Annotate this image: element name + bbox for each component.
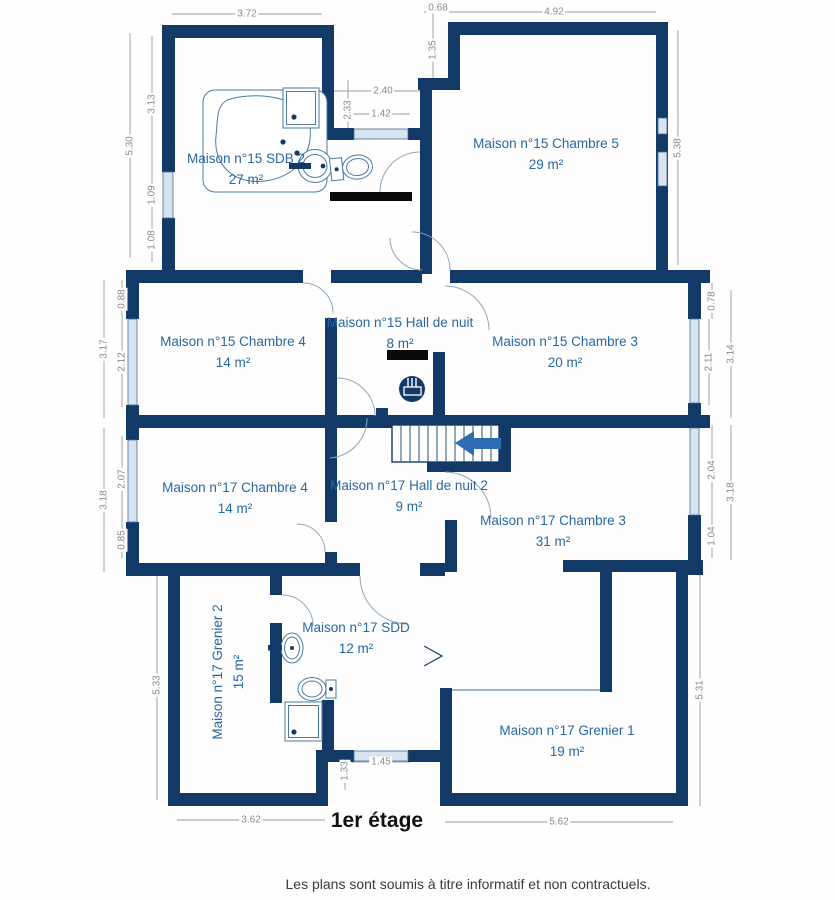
room-name: Maison n°15 SDB 2 [187,151,305,166]
room-label-chambre4-n15: Maison n°15 Chambre 4 14 m² [160,331,306,373]
room-area: 8 m² [386,336,413,351]
dimension-label: 5.30 [125,134,136,157]
room-area: 19 m² [550,744,585,759]
room-name: Maison n°17 Chambre 4 [162,480,308,495]
room-area: 29 m² [529,157,564,172]
dimension-label: 2.40 [371,86,394,97]
dimension-label: 1.45 [369,757,392,768]
dimension-label: 0.68 [426,3,449,14]
room-label-hall2-n17: Maison n°17 Hall de nuit 2 9 m² [330,475,488,517]
room-name: Maison n°17 Hall de nuit 2 [330,478,488,493]
dimension-label: 2.12 [117,350,128,373]
dimension-label: 1.04 [707,524,718,547]
room-label-sdd: Maison n°17 SDD 12 m² [302,617,409,659]
stairs-icon [392,425,501,462]
dimension-label: 3.18 [726,480,737,503]
wall-opening-marker [424,646,442,666]
dimension-label: 1.42 [369,109,392,120]
room-name: Maison n°15 Chambre 5 [473,136,619,151]
room-name: Maison n°15 Hall de nuit [327,315,473,330]
room-label-hall-n15: Maison n°15 Hall de nuit 8 m² [327,312,473,354]
room-area: 14 m² [216,355,251,370]
room-label-sdb2: Maison n°15 SDB 2 27 m² [187,148,305,190]
floor-title: 1er étage [331,809,423,833]
dimension-label: 0.78 [707,289,718,312]
room-name: Maison n°15 Chambre 4 [160,334,306,349]
dimension-label: 2.04 [707,458,718,481]
dimension-label: 1.33 [340,759,351,782]
room-label-chambre3-n15: Maison n°15 Chambre 3 20 m² [492,331,638,373]
shower-icon [283,88,319,128]
room-label-chambre4-n17: Maison n°17 Chambre 4 14 m² [162,477,308,519]
shower-icon [285,702,322,741]
room-area: 9 m² [396,499,423,514]
dimension-label: 3.13 [147,92,158,115]
room-label-chambre3-n17: Maison n°17 Chambre 3 31 m² [480,510,626,552]
room-label-grenier2: Maison n°17 Grenier 2 15 m² [207,604,249,739]
room-label-chambre5: Maison n°15 Chambre 5 29 m² [473,133,619,175]
room-name: Maison n°17 SDD [302,620,409,635]
dimension-label: 1.09 [147,183,158,206]
floor-plan-page: Maison n°15 SDB 2 27 m² Maison n°15 Cham… [0,0,835,900]
room-area: 15 m² [231,655,246,690]
dimension-label: 1.08 [147,228,158,251]
dimension-label: 3.14 [726,342,737,365]
disclaimer: Les plans sont soumis à titre informatif… [286,876,651,892]
dimension-label: 4.92 [542,7,565,18]
room-name: Maison n°17 Chambre 3 [480,513,626,528]
dimension-label: 3.62 [239,815,262,826]
door-arcs [282,152,491,626]
dimension-label: 2.07 [117,467,128,490]
room-name: Maison n°17 Grenier 1 [499,723,634,738]
dimension-label: 2.33 [343,98,354,121]
room-label-grenier1: Maison n°17 Grenier 1 19 m² [499,720,634,762]
dimension-label: 3.18 [99,488,110,511]
dimension-label: 5.62 [547,817,570,828]
room-area: 31 m² [536,534,571,549]
dimension-label: 3.17 [99,337,110,360]
dimension-label: 5.38 [673,136,684,159]
dimension-label: 5.31 [695,678,706,701]
toilet-icon [329,154,373,182]
room-area: 27 m² [229,172,264,187]
dimension-label: 3.72 [235,9,258,20]
dimension-label: 5.33 [152,673,163,696]
room-name: Maison n°15 Chambre 3 [492,334,638,349]
dimension-label: 0.88 [117,287,128,310]
room-name: Maison n°17 Grenier 2 [210,604,225,739]
radiator-icon [399,376,425,402]
toilet-icon [298,678,336,701]
dimension-label: 1.35 [428,38,439,61]
room-area: 14 m² [218,501,253,516]
room-area: 20 m² [548,355,583,370]
dimension-label: 2.11 [704,351,715,374]
dimension-label: 0.85 [117,528,128,551]
room-area: 12 m² [339,641,374,656]
